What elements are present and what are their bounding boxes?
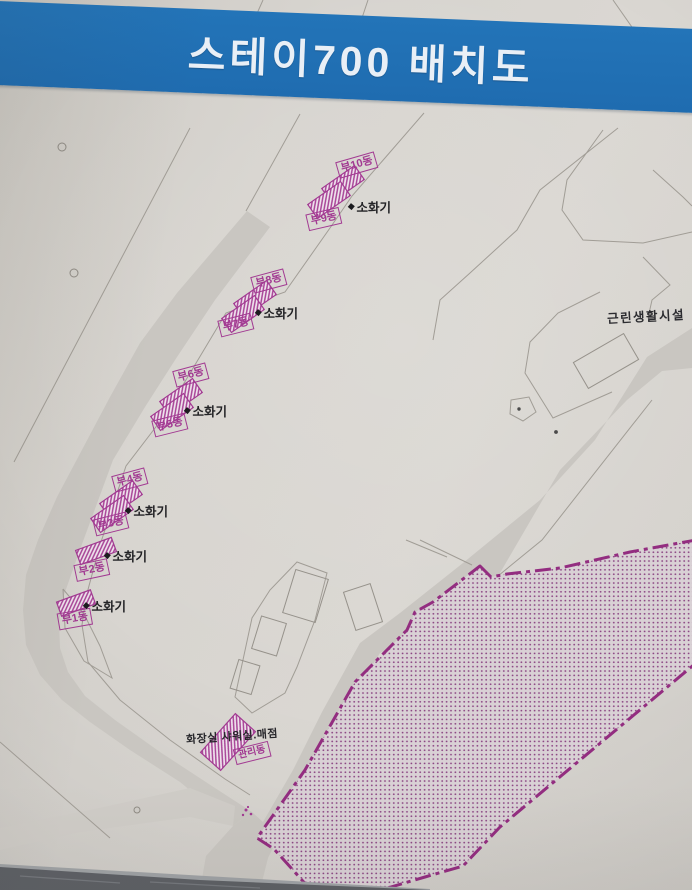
unit-label-bu5: 부5동	[151, 413, 188, 438]
fire-extinguisher-label: 소화기	[105, 546, 147, 565]
management-office-label: 관리동	[233, 741, 271, 765]
fire-extinguisher-label: 소화기	[185, 401, 227, 420]
fire-extinguisher-label: 소화기	[84, 596, 126, 615]
unit-label-bu4: 부4동	[111, 467, 149, 492]
neighborhood-facility-label: 근린생활시설	[607, 304, 686, 327]
fire-extinguisher-marker-icon	[348, 203, 354, 209]
fire-extinguisher-marker-icon	[104, 552, 110, 558]
fire-extinguisher-label: 소화기	[349, 197, 391, 216]
unit-label-bu9: 부9동	[305, 207, 342, 231]
map-labels: 부10동 부9동 부8동 부7동 부6동 부5동 부4동 부3동 부2동 부1동…	[0, 0, 692, 890]
fire-extinguisher-marker-icon	[125, 507, 131, 513]
unit-label-bu8: 부8동	[250, 268, 288, 293]
fire-extinguisher-marker-icon	[184, 407, 190, 413]
unit-label-bu10: 부10동	[335, 151, 379, 179]
site-map-board: 스테이700 배치도 부10동 부9동 부8동 부7동 부6동 부5동 부4동 …	[0, 0, 692, 890]
fire-extinguisher-label: 소화기	[256, 303, 298, 322]
fire-extinguisher-label: 소화기	[126, 501, 168, 520]
fire-extinguisher-marker-icon	[255, 309, 261, 315]
fire-extinguisher-marker-icon	[83, 602, 89, 608]
unit-label-bu3: 부3동	[92, 512, 129, 537]
unit-label-bu7: 부7동	[217, 313, 254, 338]
unit-label-bu6: 부6동	[172, 362, 210, 387]
